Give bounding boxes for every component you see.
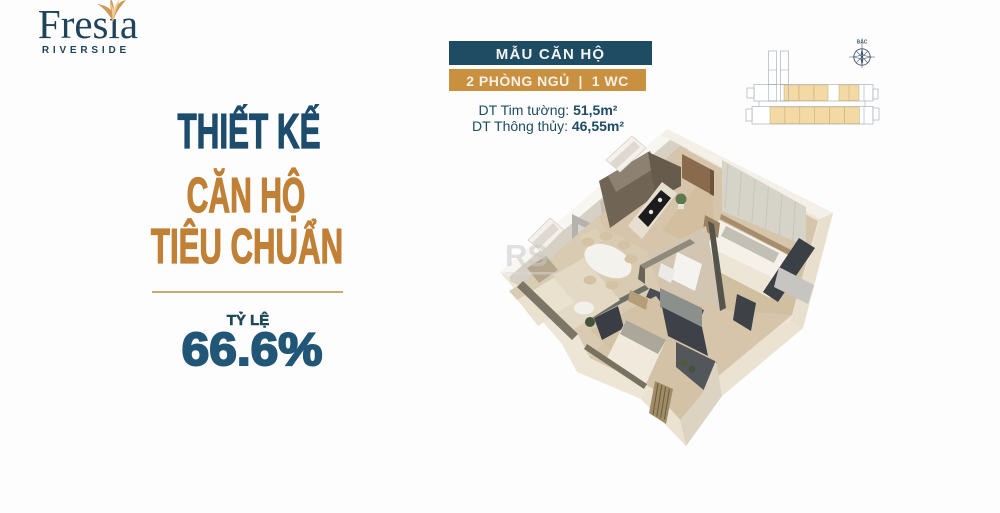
- svg-text:RS: RS: [505, 238, 548, 273]
